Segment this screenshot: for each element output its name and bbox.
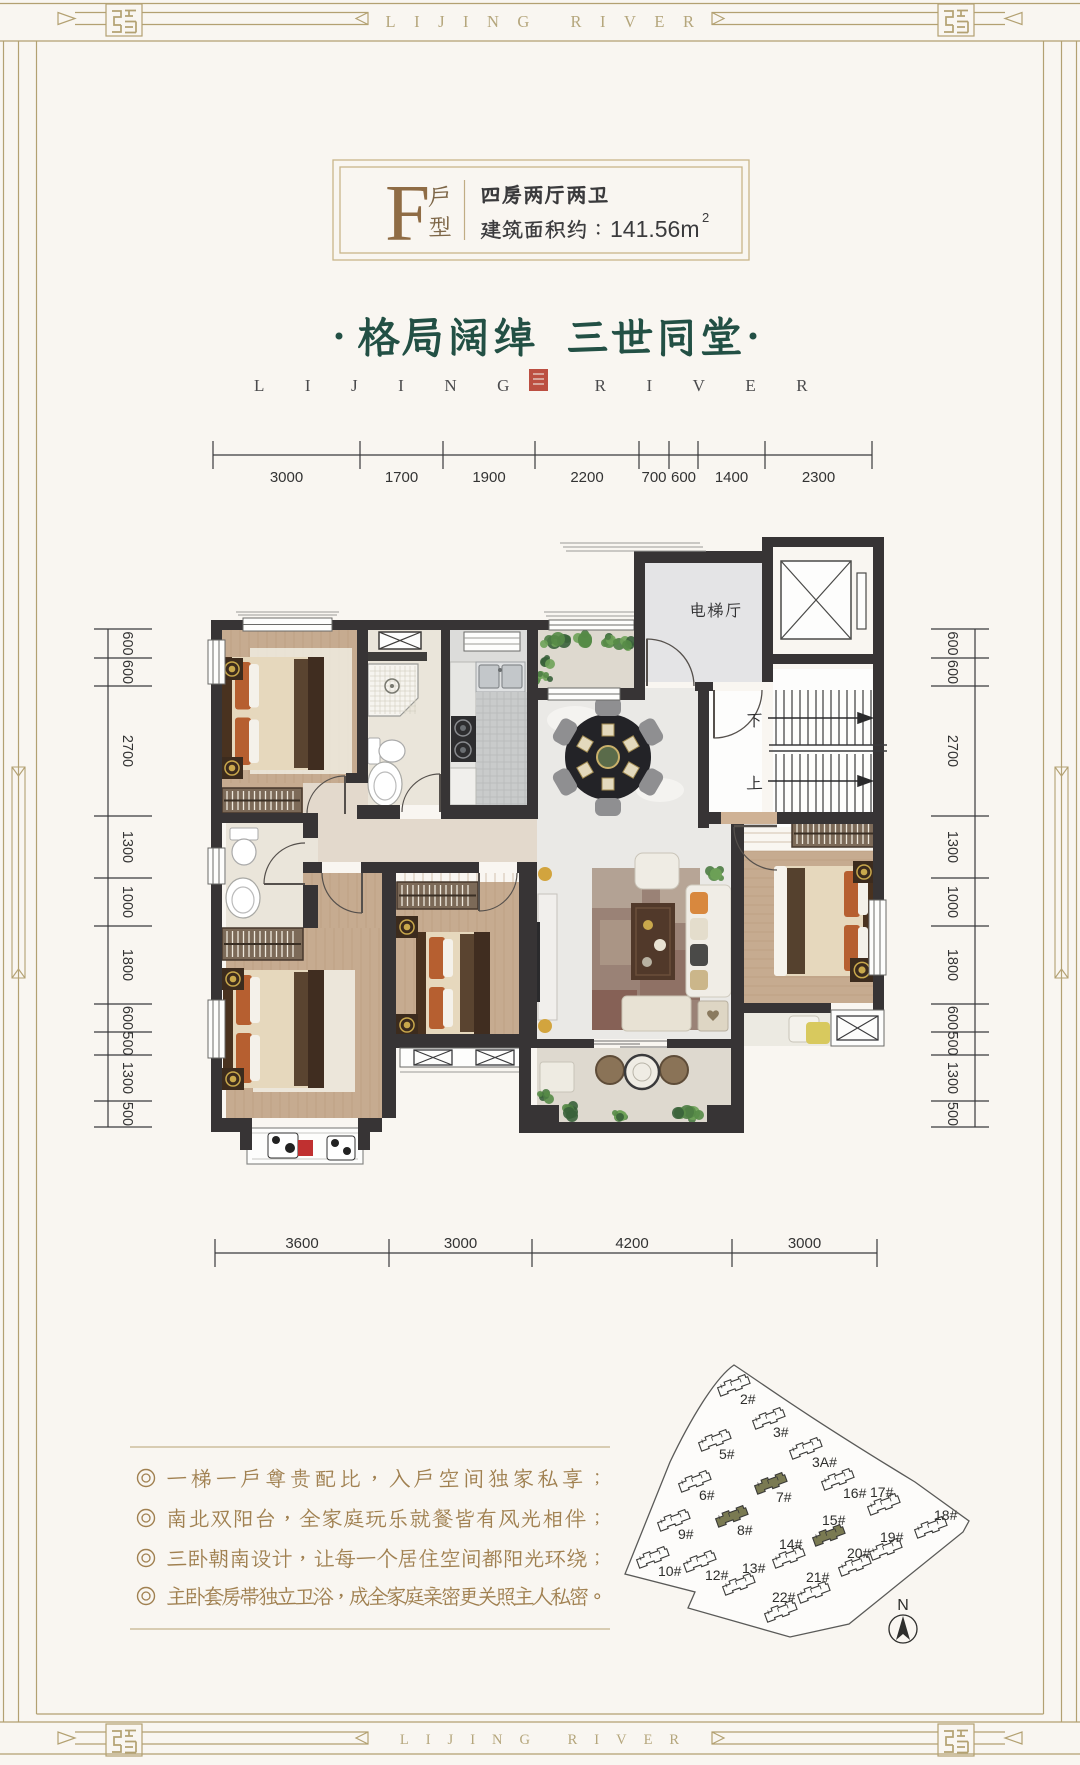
svg-text:3600: 3600: [285, 1235, 318, 1252]
svg-text:1000: 1000: [944, 886, 960, 918]
svg-text:3#: 3#: [773, 1424, 789, 1440]
svg-text:1400: 1400: [715, 469, 748, 486]
svg-text:1300: 1300: [944, 831, 960, 863]
svg-text:14#: 14#: [779, 1536, 803, 1552]
svg-text:3000: 3000: [270, 469, 303, 486]
svg-text:600: 600: [119, 1006, 135, 1030]
svg-text:2200: 2200: [570, 469, 603, 486]
svg-text:19#: 19#: [880, 1529, 904, 1545]
svg-text:6#: 6#: [699, 1487, 715, 1503]
svg-text:141.56m: 141.56m: [610, 216, 700, 242]
svg-text:600: 600: [119, 631, 135, 655]
svg-text:600: 600: [944, 631, 960, 655]
svg-text:2700: 2700: [119, 735, 135, 767]
svg-text:4200: 4200: [615, 1235, 648, 1252]
svg-text:2300: 2300: [802, 469, 835, 486]
svg-text:21#: 21#: [806, 1569, 830, 1585]
svg-text:F: F: [385, 168, 430, 258]
svg-text:N: N: [897, 1597, 909, 1614]
svg-text:13#: 13#: [742, 1560, 766, 1576]
svg-text:5#: 5#: [719, 1446, 735, 1462]
svg-text:1300: 1300: [119, 1062, 135, 1094]
svg-text:500: 500: [119, 1102, 135, 1126]
svg-text:2: 2: [702, 210, 709, 225]
svg-text:LIJING RIVER: LIJING RIVER: [254, 376, 848, 395]
svg-text:8#: 8#: [737, 1522, 753, 1538]
svg-text:LIJING RIVER: LIJING RIVER: [400, 1732, 696, 1748]
svg-text:20#: 20#: [847, 1545, 871, 1561]
svg-text:3000: 3000: [788, 1235, 821, 1252]
svg-text:15#: 15#: [822, 1512, 846, 1528]
svg-text:600: 600: [944, 660, 960, 684]
svg-text:500: 500: [944, 1031, 960, 1055]
svg-text:1000: 1000: [119, 886, 135, 918]
svg-text:1800: 1800: [944, 949, 960, 981]
svg-text:9#: 9#: [678, 1526, 694, 1542]
svg-text:17#: 17#: [870, 1484, 894, 1500]
svg-text:700: 700: [641, 469, 666, 486]
svg-text:1300: 1300: [944, 1062, 960, 1094]
svg-text:500: 500: [944, 1102, 960, 1126]
svg-text:600: 600: [119, 660, 135, 684]
svg-text:600: 600: [671, 469, 696, 486]
svg-text:12#: 12#: [705, 1567, 729, 1583]
svg-text:1700: 1700: [385, 469, 418, 486]
svg-text:2700: 2700: [944, 735, 960, 767]
svg-text:10#: 10#: [658, 1563, 682, 1579]
svg-text:1900: 1900: [472, 469, 505, 486]
svg-text:18#: 18#: [934, 1507, 958, 1523]
svg-text:16#: 16#: [843, 1485, 867, 1501]
svg-text:600: 600: [944, 1006, 960, 1030]
svg-text:1300: 1300: [119, 831, 135, 863]
svg-text:22#: 22#: [772, 1589, 796, 1605]
svg-text:2#: 2#: [740, 1391, 756, 1407]
svg-text:7#: 7#: [776, 1489, 792, 1505]
svg-text:3A#: 3A#: [812, 1454, 837, 1470]
svg-text:3000: 3000: [444, 1235, 477, 1252]
svg-text:LIJING RIVER: LIJING RIVER: [386, 12, 713, 31]
svg-text:1800: 1800: [119, 949, 135, 981]
svg-text:500: 500: [119, 1031, 135, 1055]
